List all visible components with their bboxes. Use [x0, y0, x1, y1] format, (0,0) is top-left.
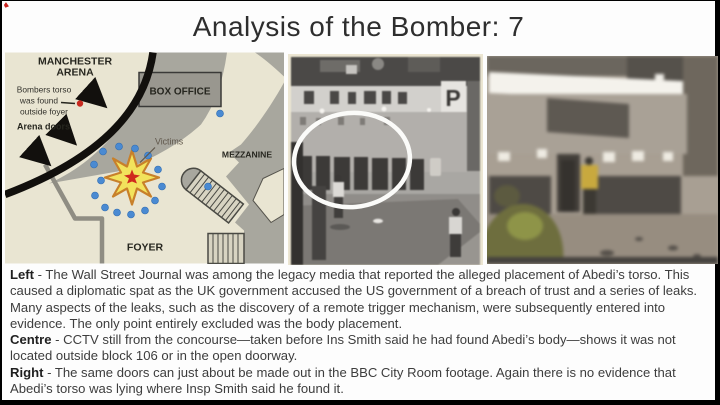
caption-block: Left - The Wall Street Journal was among…	[10, 267, 712, 397]
slide-frame: Analysis of the Bomber: 7 BOX OFFICE	[0, 0, 720, 405]
caption-left-body: - The Wall Street Journal was among the …	[10, 267, 697, 331]
cctv-svg: P	[288, 54, 483, 265]
red-corner-mark	[3, 2, 10, 10]
torso-note-line2: was found	[19, 96, 59, 106]
caption-left: Left - The Wall Street Journal was among…	[10, 267, 712, 332]
arena-map-figure: BOX OFFICE	[5, 52, 284, 264]
slide: Analysis of the Bomber: 7 BOX OFFICE	[2, 1, 715, 400]
arena-doors-label: Arena doors	[17, 122, 70, 132]
caption-left-lead: Left	[10, 267, 34, 282]
caption-centre: Centre - CCTV still from the concourse—t…	[10, 332, 712, 365]
slide-title: Analysis of the Bomber: 7	[2, 11, 715, 43]
bin	[430, 158, 441, 176]
hi-vis-person	[581, 157, 598, 215]
caption-centre-lead: Centre	[10, 332, 51, 347]
torso-note-line3: outside foyer	[20, 107, 68, 117]
mezzanine-label: MEZZANINE	[222, 150, 272, 160]
caption-right-lead: Right	[10, 365, 43, 380]
cctv-still-figure: P	[288, 54, 483, 265]
arena-map-svg: BOX OFFICE	[5, 52, 284, 264]
arena-label-line2: ARENA	[56, 67, 94, 79]
p-sign-letter: P	[445, 85, 460, 111]
torso-note-line1: Bombers torso	[17, 85, 72, 95]
torso-location-dot	[77, 100, 83, 106]
foyer-label: FOYER	[127, 242, 164, 254]
victims-label: Victims	[155, 137, 184, 147]
caption-right-body: - The same doors can just about be made …	[10, 365, 676, 396]
caption-centre-body: - CCTV still from the concourse—taken be…	[10, 332, 676, 363]
box-office-label: BOX OFFICE	[149, 87, 210, 98]
city-room-footage-figure	[487, 56, 718, 264]
footage-svg	[487, 56, 718, 264]
caption-right: Right - The same doors can just about be…	[10, 365, 712, 398]
